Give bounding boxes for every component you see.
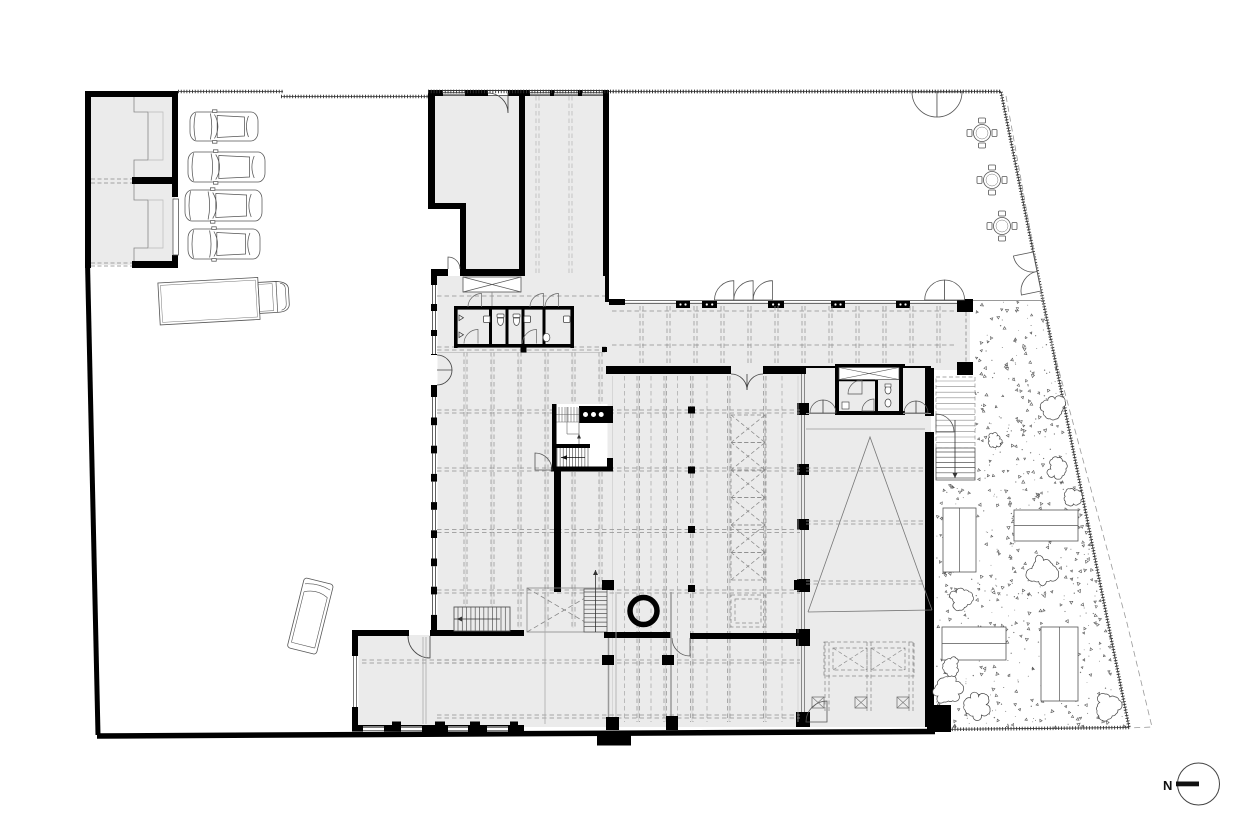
- svg-text:N: N: [1163, 778, 1172, 793]
